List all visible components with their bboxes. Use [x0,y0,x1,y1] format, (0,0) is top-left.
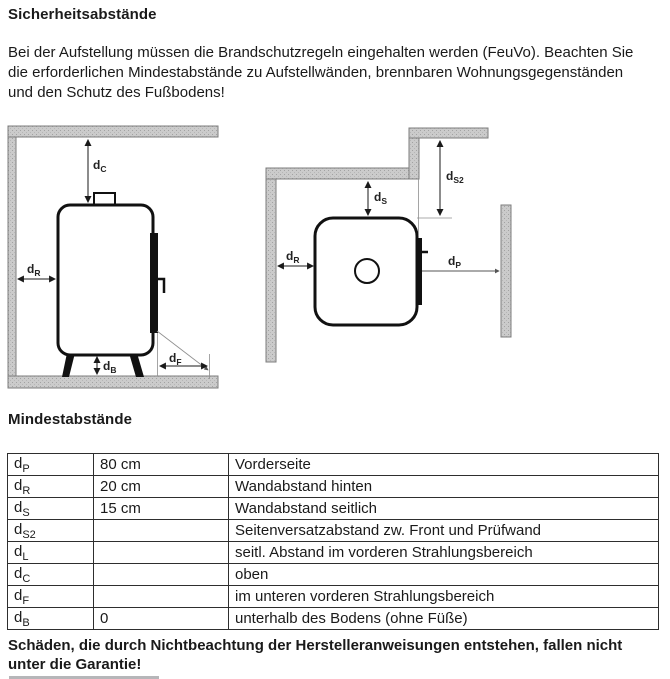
distance-description-cell: oben [229,564,659,586]
distance-symbol-cell: dR [8,476,94,498]
top-wall-side [266,168,419,179]
table-row: dB 0 unterhalb des Bodens (ohne Füße) [8,608,659,630]
radiation-diagonal-line [157,331,208,370]
distance-symbol-cell: dF [8,586,94,608]
manual-page: Sicherheitsabstände Bei der Aufstellung … [0,0,670,679]
distance-description-cell: Wandabstand hinten [229,476,659,498]
table-row: dL seitl. Abstand im vorderen Strahlungs… [8,542,659,564]
label-dr-side: dR [27,262,40,278]
table-row: dP 80 cm Vorderseite [8,454,659,476]
table-row: dS2 Seitenversatzabstand zw. Front und P… [8,520,659,542]
label-ds2: dS2 [446,169,464,185]
distance-value-cell: 80 cm [94,454,229,476]
min-distances-table-body: dP 80 cm Vorderseite dR 20 cm Wandabstan… [8,454,659,630]
test-wall-front [501,205,511,337]
side-ceiling [8,126,218,137]
top-view-diagram: dS dS2 dR dP [266,128,511,362]
distance-symbol-cell: dB [8,608,94,630]
label-dp: dP [448,254,461,270]
side-wall-left [8,126,16,388]
distance-description-cell: Vorderseite [229,454,659,476]
distance-description-cell: im unteren vorderen Strahlungsbereich [229,586,659,608]
flue-circle [355,259,379,283]
top-wall-rear [266,168,276,362]
label-dc: dC [93,158,106,174]
distance-symbol-cell: dP [8,454,94,476]
min-distances-table: dP 80 cm Vorderseite dR 20 cm Wandabstan… [7,453,659,630]
top-wall-offset [409,128,488,138]
door-handle-side [158,279,164,293]
stove-leg-left [62,353,75,377]
distance-symbol-cell: dS [8,498,94,520]
label-db: dB [103,359,116,375]
label-df: dF [169,351,182,367]
distance-description-cell: Seitenversatzabstand zw. Front und Prüfw… [229,520,659,542]
table-row: dF im unteren vorderen Strahlungsbereich [8,586,659,608]
distance-value-cell [94,542,229,564]
distance-value-cell [94,586,229,608]
distance-symbol-cell: dL [8,542,94,564]
stove-door-top [416,238,422,305]
warranty-warning: Schäden, die durch Nichtbeachtung der He… [8,636,648,674]
section-title-mindestabstaende: Mindestabstände [8,411,132,428]
table-row: dS 15 cm Wandabstand seitlich [8,498,659,520]
table-row: dR 20 cm Wandabstand hinten [8,476,659,498]
side-view-diagram: dC dR dB dF [8,126,218,388]
stove-side-body [58,205,153,355]
label-dr-top: dR [286,249,299,265]
distance-description-cell: unterhalb des Bodens (ohne Füße) [229,608,659,630]
label-ds: dS [374,190,387,206]
distance-description-cell: Wandabstand seitlich [229,498,659,520]
intro-paragraph: Bei der Aufstellung müssen die Brandschu… [8,43,650,103]
page-title: Sicherheitsabstände [8,6,157,23]
distance-symbol-cell: dS2 [8,520,94,542]
side-floor [8,376,218,388]
distance-value-cell: 0 [94,608,229,630]
safety-distance-diagrams: dC dR dB dF dS dS [0,118,670,408]
distance-value-cell: 15 cm [94,498,229,520]
distance-description-cell: seitl. Abstand im vorderen Strahlungsber… [229,542,659,564]
distance-value-cell [94,520,229,542]
stove-door-side [150,233,158,333]
distance-value-cell: 20 cm [94,476,229,498]
distance-value-cell [94,564,229,586]
table-row: dC oben [8,564,659,586]
stove-leg-right [129,353,144,377]
distance-symbol-cell: dC [8,564,94,586]
